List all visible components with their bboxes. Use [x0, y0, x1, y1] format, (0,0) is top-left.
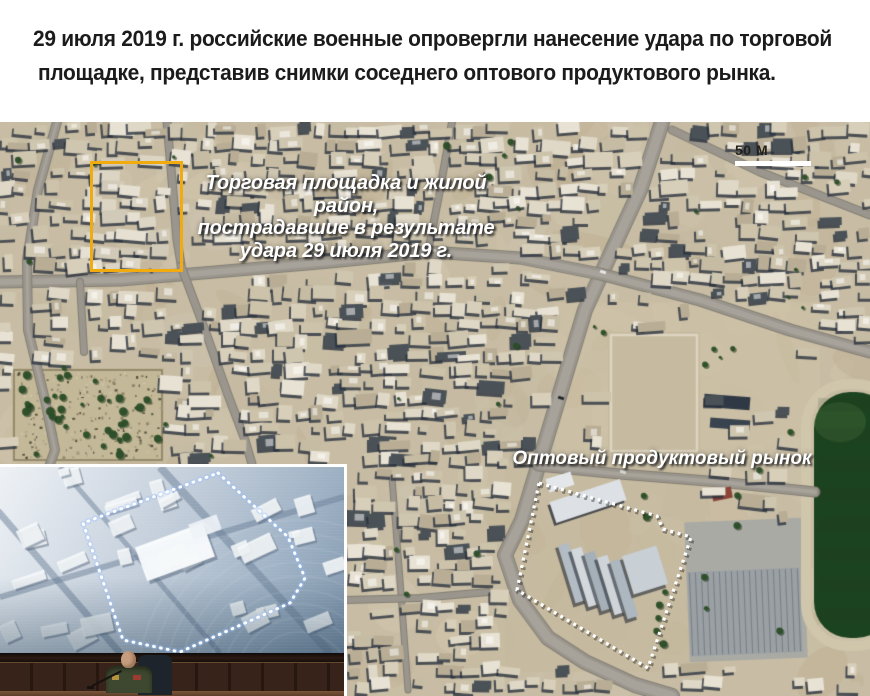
- briefing-photo-inset: [0, 464, 347, 696]
- infographic-page: 29 июля 2019 г. российские военные опров…: [0, 0, 870, 696]
- scale-bar: 50 М: [735, 142, 811, 166]
- microphone-base: [87, 686, 94, 689]
- scale-bar-line: [735, 161, 811, 166]
- desk-front-panel: [0, 662, 344, 691]
- scale-bar-label: 50 М: [735, 142, 811, 158]
- desk-bottom-band: [0, 691, 344, 696]
- screen-dotted-outline-glow: [83, 473, 305, 652]
- header-title-line1: 29 июля 2019 г. российские военные опров…: [33, 26, 832, 52]
- header: 29 июля 2019 г. российские военные опров…: [0, 0, 870, 122]
- market-label: Оптовый продуктовый рынок: [512, 448, 812, 469]
- medal-ribbon-right: [133, 675, 141, 680]
- damage-annotation-line1: Торговая площадка и жилой район,: [178, 172, 514, 217]
- header-title-line2: площадке, представив снимки соседнего оп…: [38, 60, 776, 86]
- damage-annotation-line2: пострадавшие в результате: [178, 217, 514, 240]
- desk-rail: [0, 653, 344, 662]
- damage-highlight-box: [90, 161, 183, 272]
- damage-annotation: Торговая площадка и жилой район, пострад…: [178, 172, 514, 262]
- military-officer-head: [121, 651, 136, 668]
- satellite-map: Торговая площадка и жилой район, пострад…: [0, 122, 870, 696]
- damage-annotation-line3: удара 29 июля 2019 г.: [178, 240, 514, 263]
